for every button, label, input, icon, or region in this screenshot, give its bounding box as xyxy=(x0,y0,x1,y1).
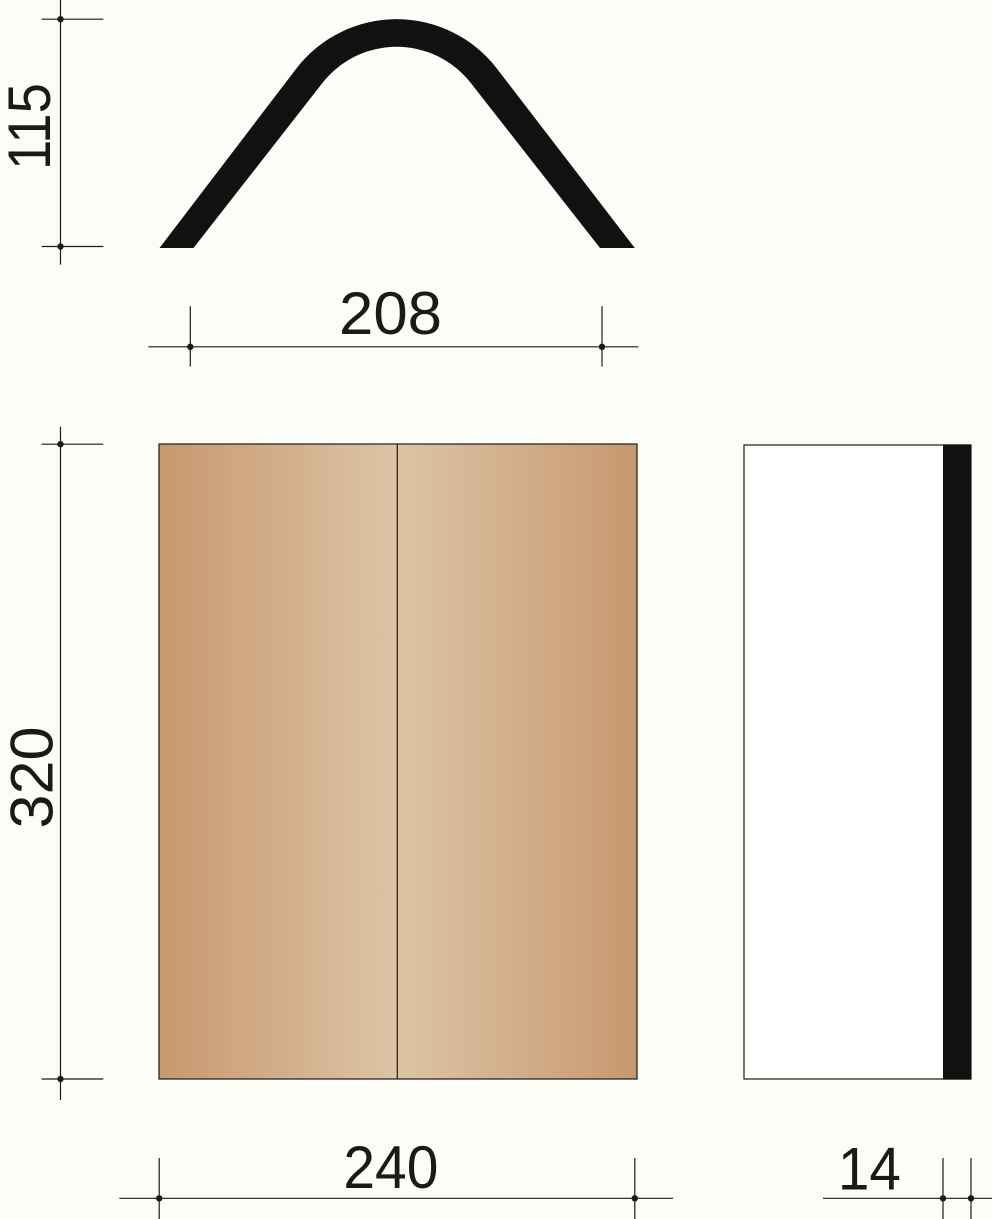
svg-text:208: 208 xyxy=(339,279,442,347)
svg-text:14: 14 xyxy=(838,1135,901,1203)
svg-text:115: 115 xyxy=(0,83,63,170)
svg-text:240: 240 xyxy=(343,1133,438,1201)
svg-text:320: 320 xyxy=(0,727,65,829)
